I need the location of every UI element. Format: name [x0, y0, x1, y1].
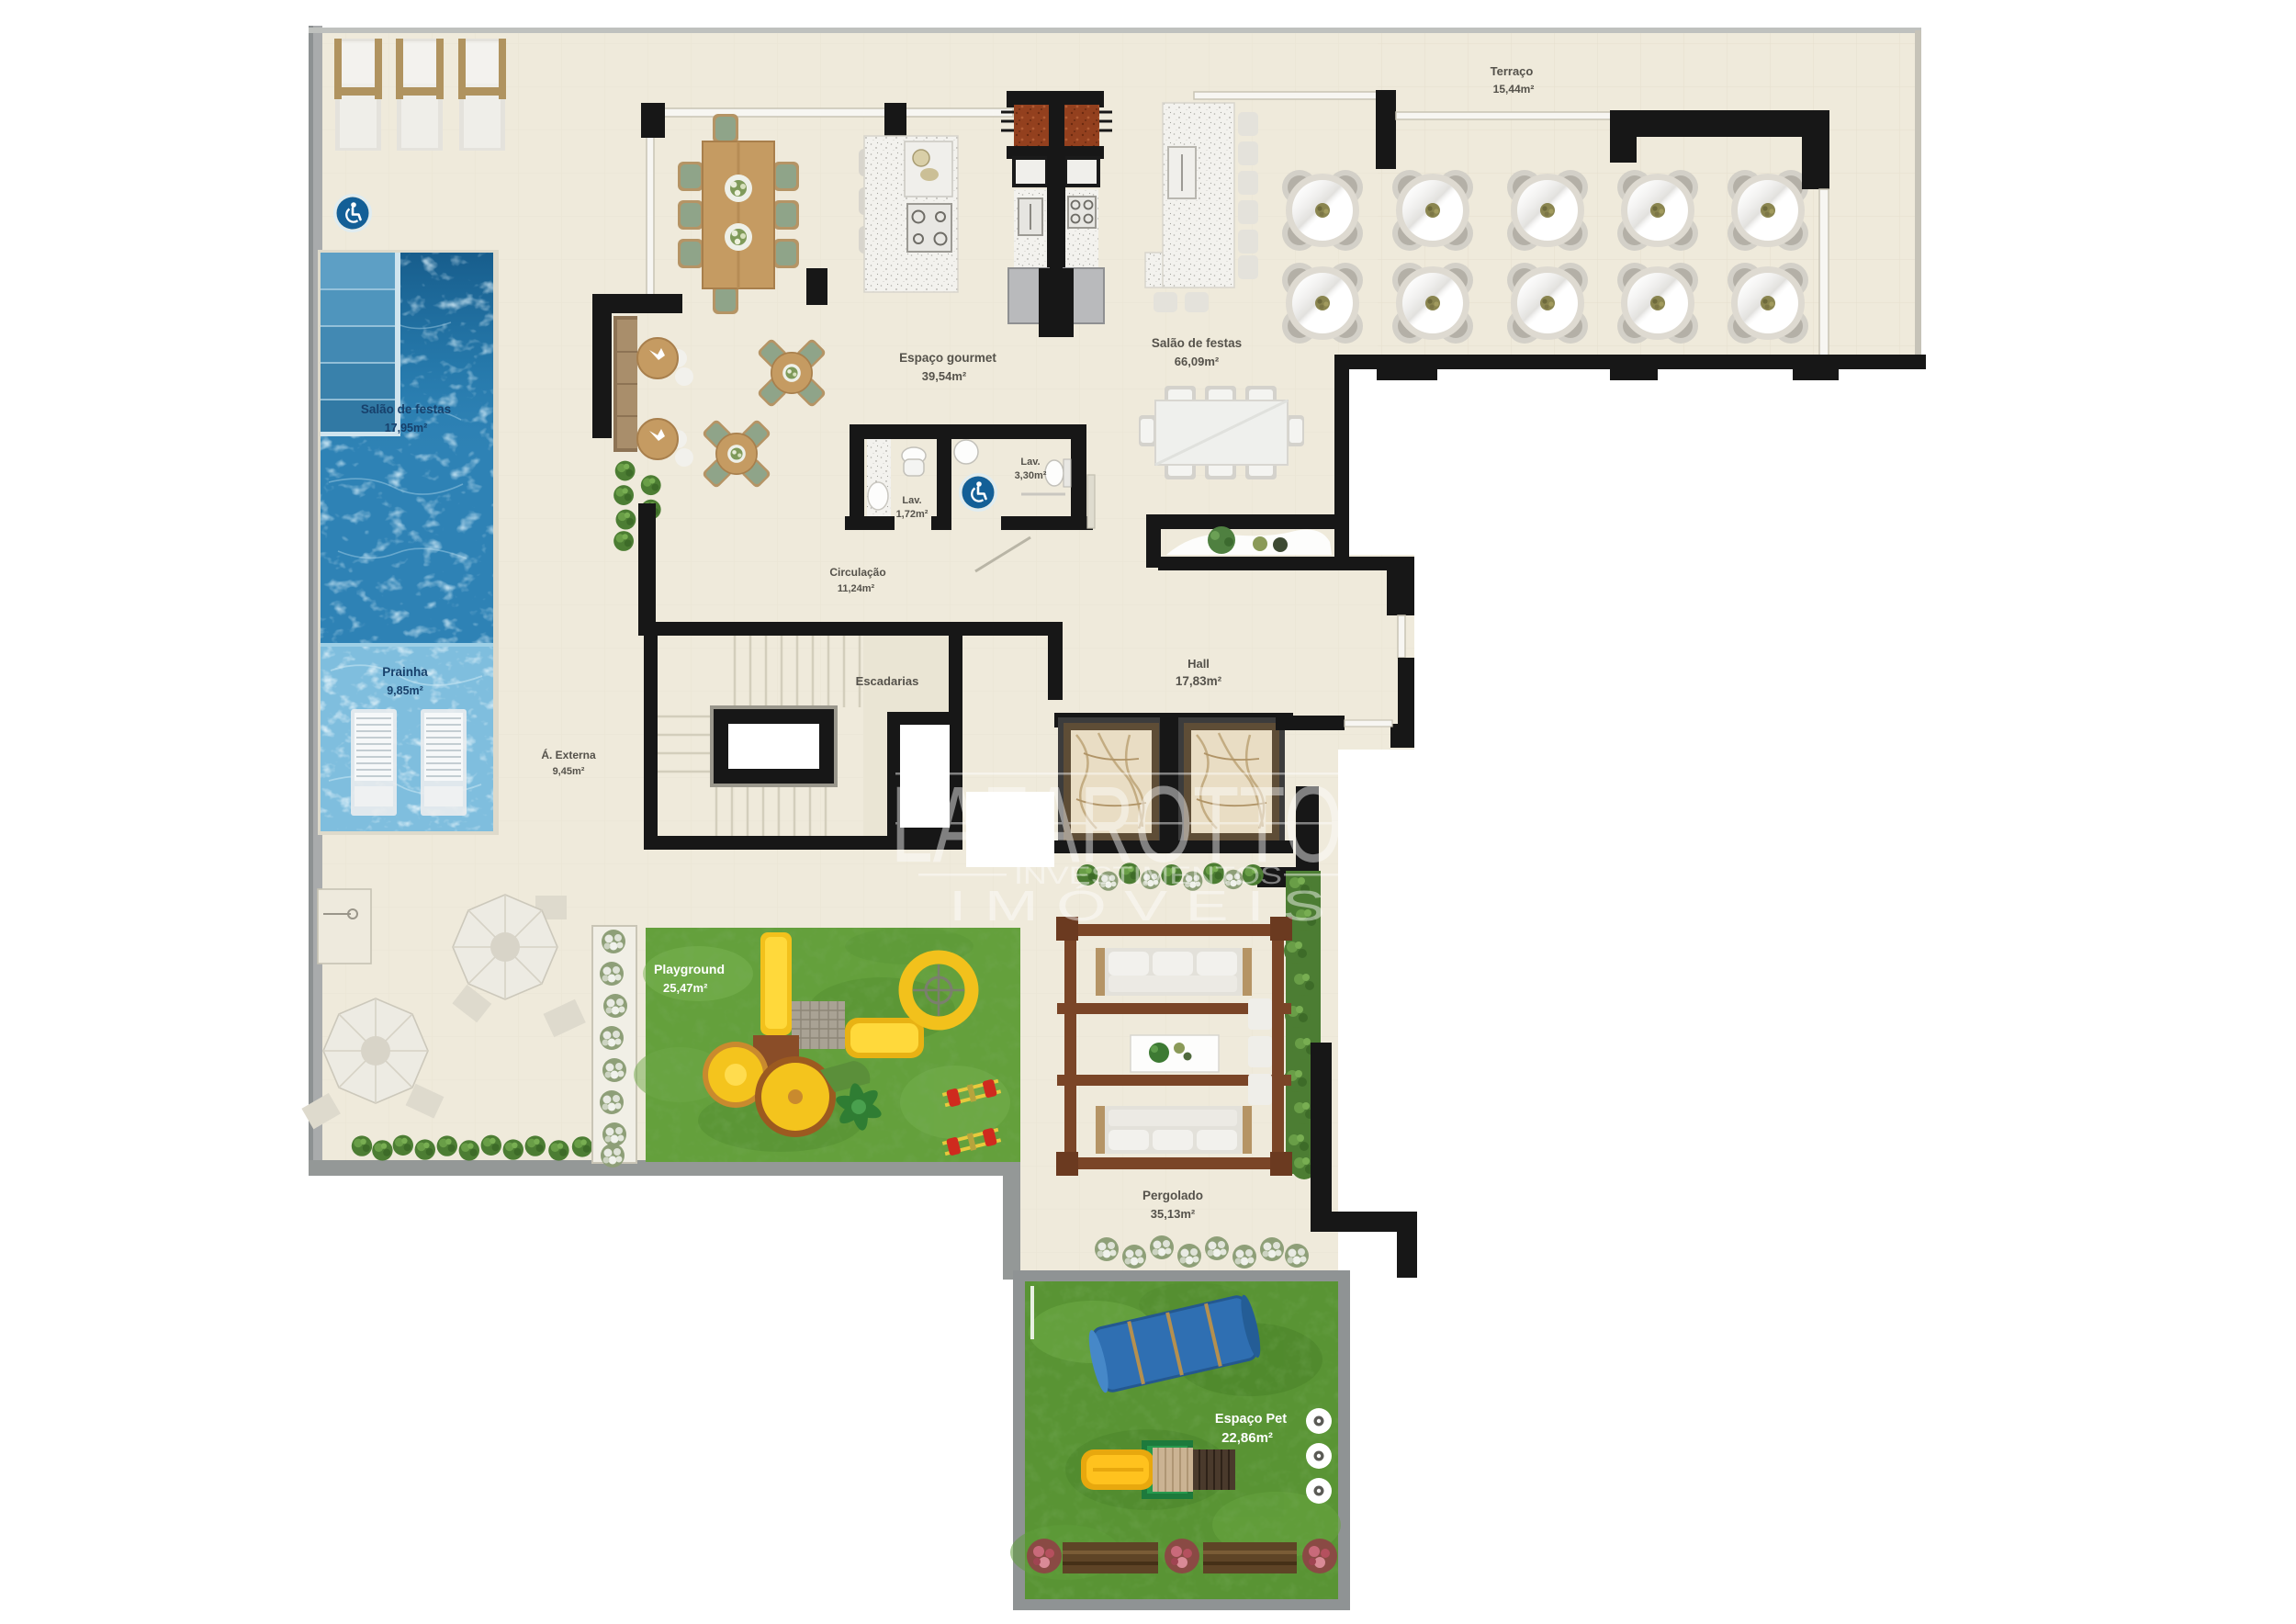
svg-text:Espaço Pet: Espaço Pet [1215, 1412, 1287, 1427]
svg-text:Lav.: Lav. [1020, 457, 1040, 468]
svg-text:Escadarias: Escadarias [856, 674, 919, 688]
svg-text:Salão de festas: Salão de festas [1152, 336, 1242, 350]
svg-text:35,13m²: 35,13m² [1151, 1207, 1196, 1221]
svg-text:Hall: Hall [1187, 657, 1210, 671]
svg-text:25,47m²: 25,47m² [663, 981, 708, 995]
svg-text:9,45m²: 9,45m² [553, 766, 585, 777]
svg-text:Á. Externa: Á. Externa [541, 748, 596, 761]
svg-text:I M Ó V E I S: I M Ó V E I S [949, 882, 1325, 930]
svg-text:1,72m²: 1,72m² [896, 509, 929, 520]
svg-text:17,83m²: 17,83m² [1176, 674, 1222, 688]
svg-text:Pergolado: Pergolado [1142, 1189, 1203, 1202]
svg-text:3,30m²: 3,30m² [1015, 470, 1047, 481]
svg-text:22,86m²: 22,86m² [1221, 1430, 1273, 1446]
svg-text:39,54m²: 39,54m² [922, 369, 967, 383]
svg-text:9,85m²: 9,85m² [387, 684, 423, 697]
svg-text:Terraço: Terraço [1491, 64, 1534, 78]
svg-text:11,24m²: 11,24m² [838, 583, 875, 594]
svg-text:Playground: Playground [654, 962, 725, 976]
svg-text:Prainha: Prainha [382, 665, 428, 679]
svg-text:15,44m²: 15,44m² [1493, 83, 1535, 96]
svg-text:17,95m²: 17,95m² [385, 422, 428, 434]
svg-text:Circulação: Circulação [829, 566, 885, 579]
svg-text:Lav.: Lav. [902, 495, 921, 506]
svg-text:Salão de festas: Salão de festas [361, 402, 451, 416]
svg-text:Espaço gourmet: Espaço gourmet [899, 351, 996, 365]
svg-text:66,09m²: 66,09m² [1175, 355, 1220, 368]
